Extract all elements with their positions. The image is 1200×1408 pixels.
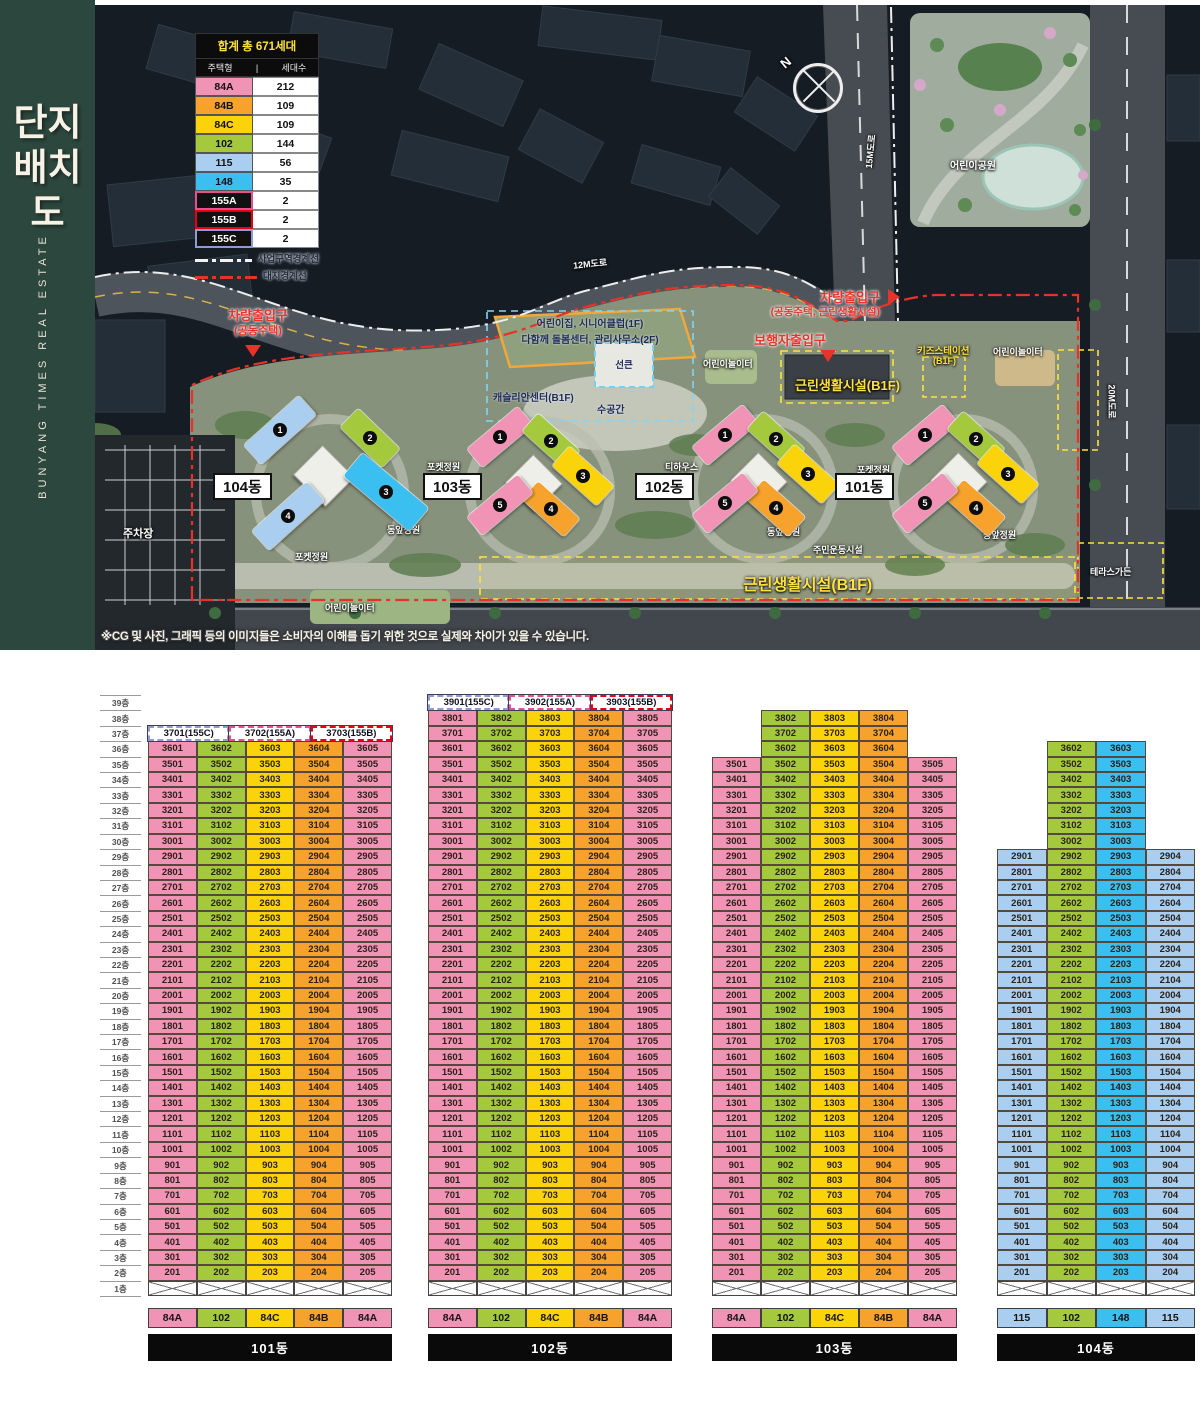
vehicle-entry-right-arrow-icon xyxy=(888,289,900,305)
unit-cell: 1504 xyxy=(1146,1065,1196,1080)
wing-number-badge: 5 xyxy=(493,498,507,512)
unit-cell: 303 xyxy=(526,1250,575,1265)
unit-cell: 505 xyxy=(908,1219,957,1234)
unit-cell: 3301 xyxy=(428,787,477,802)
unit-cell: 1602 xyxy=(477,1049,526,1064)
unit-cell: 3102 xyxy=(1047,818,1097,833)
unit-cell: 3501 xyxy=(428,757,477,772)
unit-cell: 3603 xyxy=(810,741,859,756)
unit-cell: 501 xyxy=(997,1219,1047,1234)
unit-cell: 1505 xyxy=(343,1065,392,1080)
floor-label: 26층 xyxy=(100,895,141,910)
legend-row: 155A2 xyxy=(195,191,319,210)
unit-cell: 2902 xyxy=(1047,849,1097,864)
unit-cell: 304 xyxy=(859,1250,908,1265)
unit-cell: 1101 xyxy=(148,1126,197,1141)
unit-cell: 204 xyxy=(294,1265,343,1280)
unit-cell: 1802 xyxy=(1047,1019,1097,1034)
unit-cell: 305 xyxy=(343,1250,392,1265)
floor-label: 25층 xyxy=(100,911,141,926)
unit-cell: 1902 xyxy=(1047,1003,1097,1018)
unit-cell: 803 xyxy=(526,1173,575,1188)
unit-cell: 1503 xyxy=(810,1065,859,1080)
unit-type-cell: 102 xyxy=(761,1308,810,1328)
unit-cell: 703 xyxy=(810,1188,859,1203)
unit-cell: 2703 xyxy=(526,880,575,895)
unit-cell: 202 xyxy=(1047,1265,1097,1280)
unit-cell: 2003 xyxy=(810,988,859,1003)
unit-cell: 1701 xyxy=(148,1034,197,1049)
unit-cell: 1103 xyxy=(810,1126,859,1141)
unit-cell: 1303 xyxy=(526,1096,575,1111)
unit-cell: 3204 xyxy=(859,803,908,818)
unit-cell: 3305 xyxy=(908,787,957,802)
unit-cell: 3802 xyxy=(761,710,810,725)
unit-cell: 1901 xyxy=(997,1003,1047,1018)
unit-cell: 1204 xyxy=(574,1111,623,1126)
unit-type-cell: 115 xyxy=(997,1308,1047,1328)
floor-label: 36층 xyxy=(100,741,141,756)
unit-cell: 3302 xyxy=(477,787,526,802)
unit-cell: 905 xyxy=(908,1157,957,1172)
penthouse-cell: 3902(155A) xyxy=(509,695,590,710)
unit-type-cell: 102 xyxy=(477,1308,526,1328)
unit-cell: 1205 xyxy=(623,1111,672,1126)
unit-cell: 2604 xyxy=(574,895,623,910)
unit-cell: 3704 xyxy=(859,726,908,741)
unit-cell: 505 xyxy=(623,1219,672,1234)
unit-cell: 3201 xyxy=(148,803,197,818)
unit-cell: 705 xyxy=(343,1188,392,1203)
unit-cell: 1204 xyxy=(859,1111,908,1126)
unit-cell: 3703 xyxy=(810,726,859,741)
unit-cell: 2005 xyxy=(623,988,672,1003)
unit-cell: 2504 xyxy=(859,911,908,926)
floor-label: 23층 xyxy=(100,942,141,957)
unit-type-cell: 102 xyxy=(1047,1308,1097,1328)
business-boundary-line xyxy=(195,259,252,262)
unit-cell: 3102 xyxy=(761,818,810,833)
unit-cell: 1001 xyxy=(997,1142,1047,1157)
unit-cell: 3801 xyxy=(428,710,477,725)
unit-cell: 2804 xyxy=(859,865,908,880)
unit-cell: 1901 xyxy=(428,1003,477,1018)
unit-cell: 2202 xyxy=(761,957,810,972)
unit-cell: 3203 xyxy=(1096,803,1146,818)
unit-type-cell: 84B xyxy=(294,1308,343,1328)
unit-cell: 703 xyxy=(1096,1188,1146,1203)
unit-cell: 2003 xyxy=(246,988,295,1003)
floor-label: 18층 xyxy=(100,1019,141,1034)
unit-cell: 2501 xyxy=(148,911,197,926)
unit-cell: 3202 xyxy=(477,803,526,818)
unit-cell: 1403 xyxy=(526,1080,575,1095)
unit-cell: 2203 xyxy=(526,957,575,972)
unit-cell: 3605 xyxy=(623,741,672,756)
unit-cell: 1201 xyxy=(712,1111,761,1126)
unit-cell: 205 xyxy=(908,1265,957,1280)
unit-cell: 3502 xyxy=(197,757,246,772)
unit-cell: 3405 xyxy=(343,772,392,787)
building-101-map-label: 101동 xyxy=(835,473,894,500)
unit-cell: 2801 xyxy=(428,865,477,880)
unit-cell: 3305 xyxy=(343,787,392,802)
unit-cell: 2403 xyxy=(246,926,295,941)
unit-cell: 2003 xyxy=(526,988,575,1003)
unit-cell: 1702 xyxy=(197,1034,246,1049)
unit-cell: 2903 xyxy=(526,849,575,864)
unit-cell: 604 xyxy=(294,1204,343,1219)
unit-cell: 2504 xyxy=(1146,911,1196,926)
unit-cell: 1803 xyxy=(246,1019,295,1034)
wing-number-badge: 1 xyxy=(718,428,732,442)
unit-cell: 3703 xyxy=(526,726,575,741)
unit-cell: 3803 xyxy=(526,710,575,725)
unit-cell: 605 xyxy=(908,1204,957,1219)
crossed-cell xyxy=(526,1281,575,1296)
unit-cell: 1105 xyxy=(343,1126,392,1141)
unit-cell: 3004 xyxy=(294,834,343,849)
unit-cell: 1304 xyxy=(1146,1096,1196,1111)
label-residents-sports: 주민운동시설 xyxy=(813,543,863,556)
unit-cell: 2404 xyxy=(294,926,343,941)
unit-cell: 3002 xyxy=(1047,834,1097,849)
unit-cell: 3403 xyxy=(526,772,575,787)
unit-cell: 503 xyxy=(1096,1219,1146,1234)
unit-cell: 701 xyxy=(997,1188,1047,1203)
label-teahouse: 티하우스 xyxy=(665,460,698,473)
unit-cell: 2704 xyxy=(1146,880,1196,895)
unit-cell: 901 xyxy=(997,1157,1047,1172)
floor-label: 33층 xyxy=(100,787,141,802)
wing-number-badge: 4 xyxy=(769,501,783,515)
unit-cell: 403 xyxy=(246,1234,295,1249)
unit-type-cell: 115 xyxy=(1146,1308,1196,1328)
unit-cell: 1004 xyxy=(574,1142,623,1157)
unit-cell: 705 xyxy=(908,1188,957,1203)
unit-cell: 2303 xyxy=(246,942,295,957)
unit-cell: 2202 xyxy=(197,957,246,972)
unit-cell: 1605 xyxy=(623,1049,672,1064)
unit-cell: 1803 xyxy=(526,1019,575,1034)
unit-cell: 903 xyxy=(246,1157,295,1172)
unit-cell: 1805 xyxy=(623,1019,672,1034)
unit-cell: 2804 xyxy=(294,865,343,880)
unit-cell: 3504 xyxy=(294,757,343,772)
unit-cell: 601 xyxy=(428,1204,477,1219)
unit-cell: 405 xyxy=(623,1234,672,1249)
unit-cell: 1804 xyxy=(574,1019,623,1034)
unit-cell: 204 xyxy=(1146,1265,1196,1280)
unit-cell: 2105 xyxy=(908,972,957,987)
unit-cell: 1405 xyxy=(623,1080,672,1095)
unit-cell: 701 xyxy=(428,1188,477,1203)
unit-cell: 2101 xyxy=(148,972,197,987)
crossed-cell xyxy=(477,1281,526,1296)
unit-type-cell: 84A xyxy=(712,1308,761,1328)
unit-cell: 2604 xyxy=(294,895,343,910)
floor-label: 38층 xyxy=(100,710,141,725)
wing-number-badge: 5 xyxy=(918,496,932,510)
unit-cell: 2904 xyxy=(859,849,908,864)
unit-cell: 1703 xyxy=(1096,1034,1146,1049)
unit-cell: 201 xyxy=(997,1265,1047,1280)
unit-cell: 3202 xyxy=(761,803,810,818)
unit-cell: 2802 xyxy=(761,865,810,880)
unit-cell: 2602 xyxy=(761,895,810,910)
floor-label: 35층 xyxy=(100,757,141,772)
unit-cell: 2703 xyxy=(1096,880,1146,895)
legend-row: 84C109 xyxy=(195,115,319,134)
building-name-bar: 103동 xyxy=(712,1334,957,1361)
unit-cell: 1504 xyxy=(574,1065,623,1080)
unit-cell: 2502 xyxy=(1047,911,1097,926)
unit-cell: 2203 xyxy=(246,957,295,972)
unit-cell: 902 xyxy=(1047,1157,1097,1172)
unit-type-cell: 102 xyxy=(197,1308,246,1328)
unit-cell: 903 xyxy=(526,1157,575,1172)
unit-cell: 1904 xyxy=(1146,1003,1196,1018)
unit-cell: 2301 xyxy=(148,942,197,957)
unit-cell: 2803 xyxy=(810,865,859,880)
unit-cell: 3001 xyxy=(148,834,197,849)
unit-cell: 1003 xyxy=(1096,1142,1146,1157)
unit-cell: 405 xyxy=(908,1234,957,1249)
unit-cell: 2801 xyxy=(712,865,761,880)
page-title-line2: 배치도 xyxy=(0,145,95,235)
vehicle-entry-left-arrow-icon xyxy=(245,345,261,357)
unit-cell: 1801 xyxy=(148,1019,197,1034)
unit-cell: 3003 xyxy=(1096,834,1146,849)
unit-cell: 1004 xyxy=(859,1142,908,1157)
wing-number-badge: 3 xyxy=(379,485,393,499)
unit-cell: 1902 xyxy=(477,1003,526,1018)
unit-cell: 2605 xyxy=(623,895,672,910)
unit-cell: 2202 xyxy=(477,957,526,972)
unit-cell: 3101 xyxy=(712,818,761,833)
unit-type-cell: 84A xyxy=(623,1308,672,1328)
unit-cell: 2901 xyxy=(148,849,197,864)
unit-cell: 3003 xyxy=(526,834,575,849)
unit-cell: 2804 xyxy=(1146,865,1196,880)
unit-cell: 2705 xyxy=(908,880,957,895)
unit-cell: 2702 xyxy=(477,880,526,895)
unit-cell: 802 xyxy=(197,1173,246,1188)
unit-cell: 2004 xyxy=(574,988,623,1003)
unit-cell: 401 xyxy=(997,1234,1047,1249)
unit-cell: 3002 xyxy=(761,834,810,849)
unit-cell: 1502 xyxy=(761,1065,810,1080)
unit-cell: 3105 xyxy=(343,818,392,833)
unit-cell: 3103 xyxy=(810,818,859,833)
unit-cell: 1502 xyxy=(477,1065,526,1080)
unit-cell: 2302 xyxy=(761,942,810,957)
building-102-map-label: 102동 xyxy=(635,473,694,500)
unit-cell: 3003 xyxy=(810,834,859,849)
unit-cell: 301 xyxy=(997,1250,1047,1265)
unit-cell: 1104 xyxy=(574,1126,623,1141)
unit-type-cell: 84B xyxy=(574,1308,623,1328)
floor-label: 10층 xyxy=(100,1142,141,1157)
unit-cell: 1805 xyxy=(343,1019,392,1034)
unit-cell: 2704 xyxy=(859,880,908,895)
legend-row: 14835 xyxy=(195,172,319,191)
unit-cell: 3403 xyxy=(810,772,859,787)
unit-cell: 1802 xyxy=(477,1019,526,1034)
unit-cell: 3201 xyxy=(712,803,761,818)
unit-cell: 2305 xyxy=(623,942,672,957)
unit-cell: 2803 xyxy=(526,865,575,880)
label-neighborhood-facility-bottom: 근린생활시설(B1F) xyxy=(743,571,872,595)
unit-cell: 2805 xyxy=(343,865,392,880)
unit-cell: 303 xyxy=(810,1250,859,1265)
unit-cell: 1304 xyxy=(294,1096,343,1111)
label-childcare-1f: 어린이집, 시니어클럽(1F) xyxy=(495,315,685,330)
unit-cell: 2701 xyxy=(428,880,477,895)
unit-cell: 2101 xyxy=(997,972,1047,987)
unit-cell: 1504 xyxy=(294,1065,343,1080)
unit-cell: 2802 xyxy=(477,865,526,880)
unit-cell: 3104 xyxy=(294,818,343,833)
unit-cell: 2105 xyxy=(343,972,392,987)
floor-label: 5층 xyxy=(100,1219,141,1234)
crossed-cell xyxy=(343,1281,392,1296)
unit-cell: 2205 xyxy=(908,957,957,972)
unit-cell: 2703 xyxy=(246,880,295,895)
floor-label: 22층 xyxy=(100,957,141,972)
unit-cell: 2404 xyxy=(859,926,908,941)
floor-label: 28층 xyxy=(100,865,141,880)
unit-cell: 1705 xyxy=(343,1034,392,1049)
unit-cell: 1501 xyxy=(428,1065,477,1080)
unit-cell: 501 xyxy=(712,1219,761,1234)
unit-cell: 1404 xyxy=(859,1080,908,1095)
legend-boundary-business: 사업구역경계선 xyxy=(195,251,319,265)
legend-row: 11556 xyxy=(195,153,319,172)
unit-cell: 1403 xyxy=(246,1080,295,1095)
unit-cell: 3403 xyxy=(246,772,295,787)
floor-label: 11층 xyxy=(100,1126,141,1141)
unit-cell: 2002 xyxy=(1047,988,1097,1003)
unit-cell: 2602 xyxy=(477,895,526,910)
unit-cell: 2101 xyxy=(428,972,477,987)
unit-cell: 2603 xyxy=(246,895,295,910)
unit-cell: 2502 xyxy=(477,911,526,926)
unit-cell: 1201 xyxy=(428,1111,477,1126)
unit-cell: 1103 xyxy=(526,1126,575,1141)
unit-cell: 2402 xyxy=(197,926,246,941)
unit-cell: 2203 xyxy=(1096,957,1146,972)
unit-cell: 2402 xyxy=(761,926,810,941)
page: 단지 배치도 BUNYANG TIMES REAL ESTATE xyxy=(0,0,1200,1408)
unit-cell: 3602 xyxy=(761,741,810,756)
unit-cell: 3605 xyxy=(343,741,392,756)
unit-cell: 1202 xyxy=(197,1111,246,1126)
unit-cell: 203 xyxy=(1096,1265,1146,1280)
unit-cell: 801 xyxy=(428,1173,477,1188)
unit-cell: 3101 xyxy=(428,818,477,833)
unit-cell: 1002 xyxy=(477,1142,526,1157)
unit-cell: 202 xyxy=(761,1265,810,1280)
unit-cell: 2001 xyxy=(428,988,477,1003)
floor-label: 37층 xyxy=(100,726,141,741)
unit-cell: 2105 xyxy=(623,972,672,987)
unit-cell: 3103 xyxy=(526,818,575,833)
unit-cell: 3401 xyxy=(148,772,197,787)
unit-cell: 2601 xyxy=(428,895,477,910)
unit-cell: 2401 xyxy=(148,926,197,941)
unit-cell: 1804 xyxy=(859,1019,908,1034)
unit-cell: 903 xyxy=(810,1157,859,1172)
legend-title: 합계 총 671세대 xyxy=(195,33,319,59)
unit-cell: 1102 xyxy=(477,1126,526,1141)
unit-cell: 505 xyxy=(343,1219,392,1234)
unit-cell: 1501 xyxy=(148,1065,197,1080)
unit-cell: 1104 xyxy=(1146,1126,1196,1141)
unit-cell: 1204 xyxy=(294,1111,343,1126)
unit-cell: 3602 xyxy=(477,741,526,756)
crossed-cell xyxy=(246,1281,295,1296)
unit-cell: 3805 xyxy=(623,710,672,725)
unit-cell: 3205 xyxy=(908,803,957,818)
unit-cell: 1203 xyxy=(246,1111,295,1126)
unit-cell: 401 xyxy=(428,1234,477,1249)
unit-cell: 804 xyxy=(1146,1173,1196,1188)
legend-header: 주택형 | 세대수 xyxy=(195,59,319,77)
unit-cell: 301 xyxy=(428,1250,477,1265)
penthouse-cell: 3901(155C) xyxy=(428,695,509,710)
unit-cell: 3601 xyxy=(428,741,477,756)
unit-cell: 903 xyxy=(1096,1157,1146,1172)
unit-cell: 1503 xyxy=(1096,1065,1146,1080)
unit-cell: 3602 xyxy=(197,741,246,756)
unit-cell: 3201 xyxy=(428,803,477,818)
unit-cell: 1202 xyxy=(761,1111,810,1126)
label-water-space: 수공간 xyxy=(597,401,625,416)
unit-cell: 2301 xyxy=(997,942,1047,957)
unit-cell: 203 xyxy=(246,1265,295,1280)
unit-cell: 1402 xyxy=(197,1080,246,1095)
unit-cell: 1404 xyxy=(574,1080,623,1095)
unit-cell: 1601 xyxy=(712,1049,761,1064)
unit-cell: 802 xyxy=(1047,1173,1097,1188)
legend-boundary-site: 대지경계선 xyxy=(195,268,319,282)
unit-cell: 2304 xyxy=(294,942,343,957)
unit-cell: 2402 xyxy=(1047,926,1097,941)
unit-cell: 1903 xyxy=(810,1003,859,1018)
unit-cell: 2303 xyxy=(810,942,859,957)
unit-cell: 2003 xyxy=(1096,988,1146,1003)
unit-cell: 803 xyxy=(246,1173,295,1188)
unit-cell: 1301 xyxy=(712,1096,761,1111)
unit-cell: 404 xyxy=(294,1234,343,1249)
unit-cell: 1202 xyxy=(1047,1111,1097,1126)
unit-cell: 2201 xyxy=(997,957,1047,972)
unit-cell: 3501 xyxy=(148,757,197,772)
unit-cell: 1904 xyxy=(294,1003,343,1018)
wing-number-badge: 3 xyxy=(801,467,815,481)
unit-cell: 2004 xyxy=(859,988,908,1003)
unit-cell: 502 xyxy=(477,1219,526,1234)
unit-cell: 1103 xyxy=(1096,1126,1146,1141)
unit-cell: 402 xyxy=(1047,1234,1097,1249)
unit-cell: 601 xyxy=(148,1204,197,1219)
floor-label: 39층 xyxy=(100,695,141,710)
unit-cell: 1902 xyxy=(197,1003,246,1018)
unit-cell: 1502 xyxy=(1047,1065,1097,1080)
crossed-cell xyxy=(761,1281,810,1296)
unit-cell: 1604 xyxy=(574,1049,623,1064)
